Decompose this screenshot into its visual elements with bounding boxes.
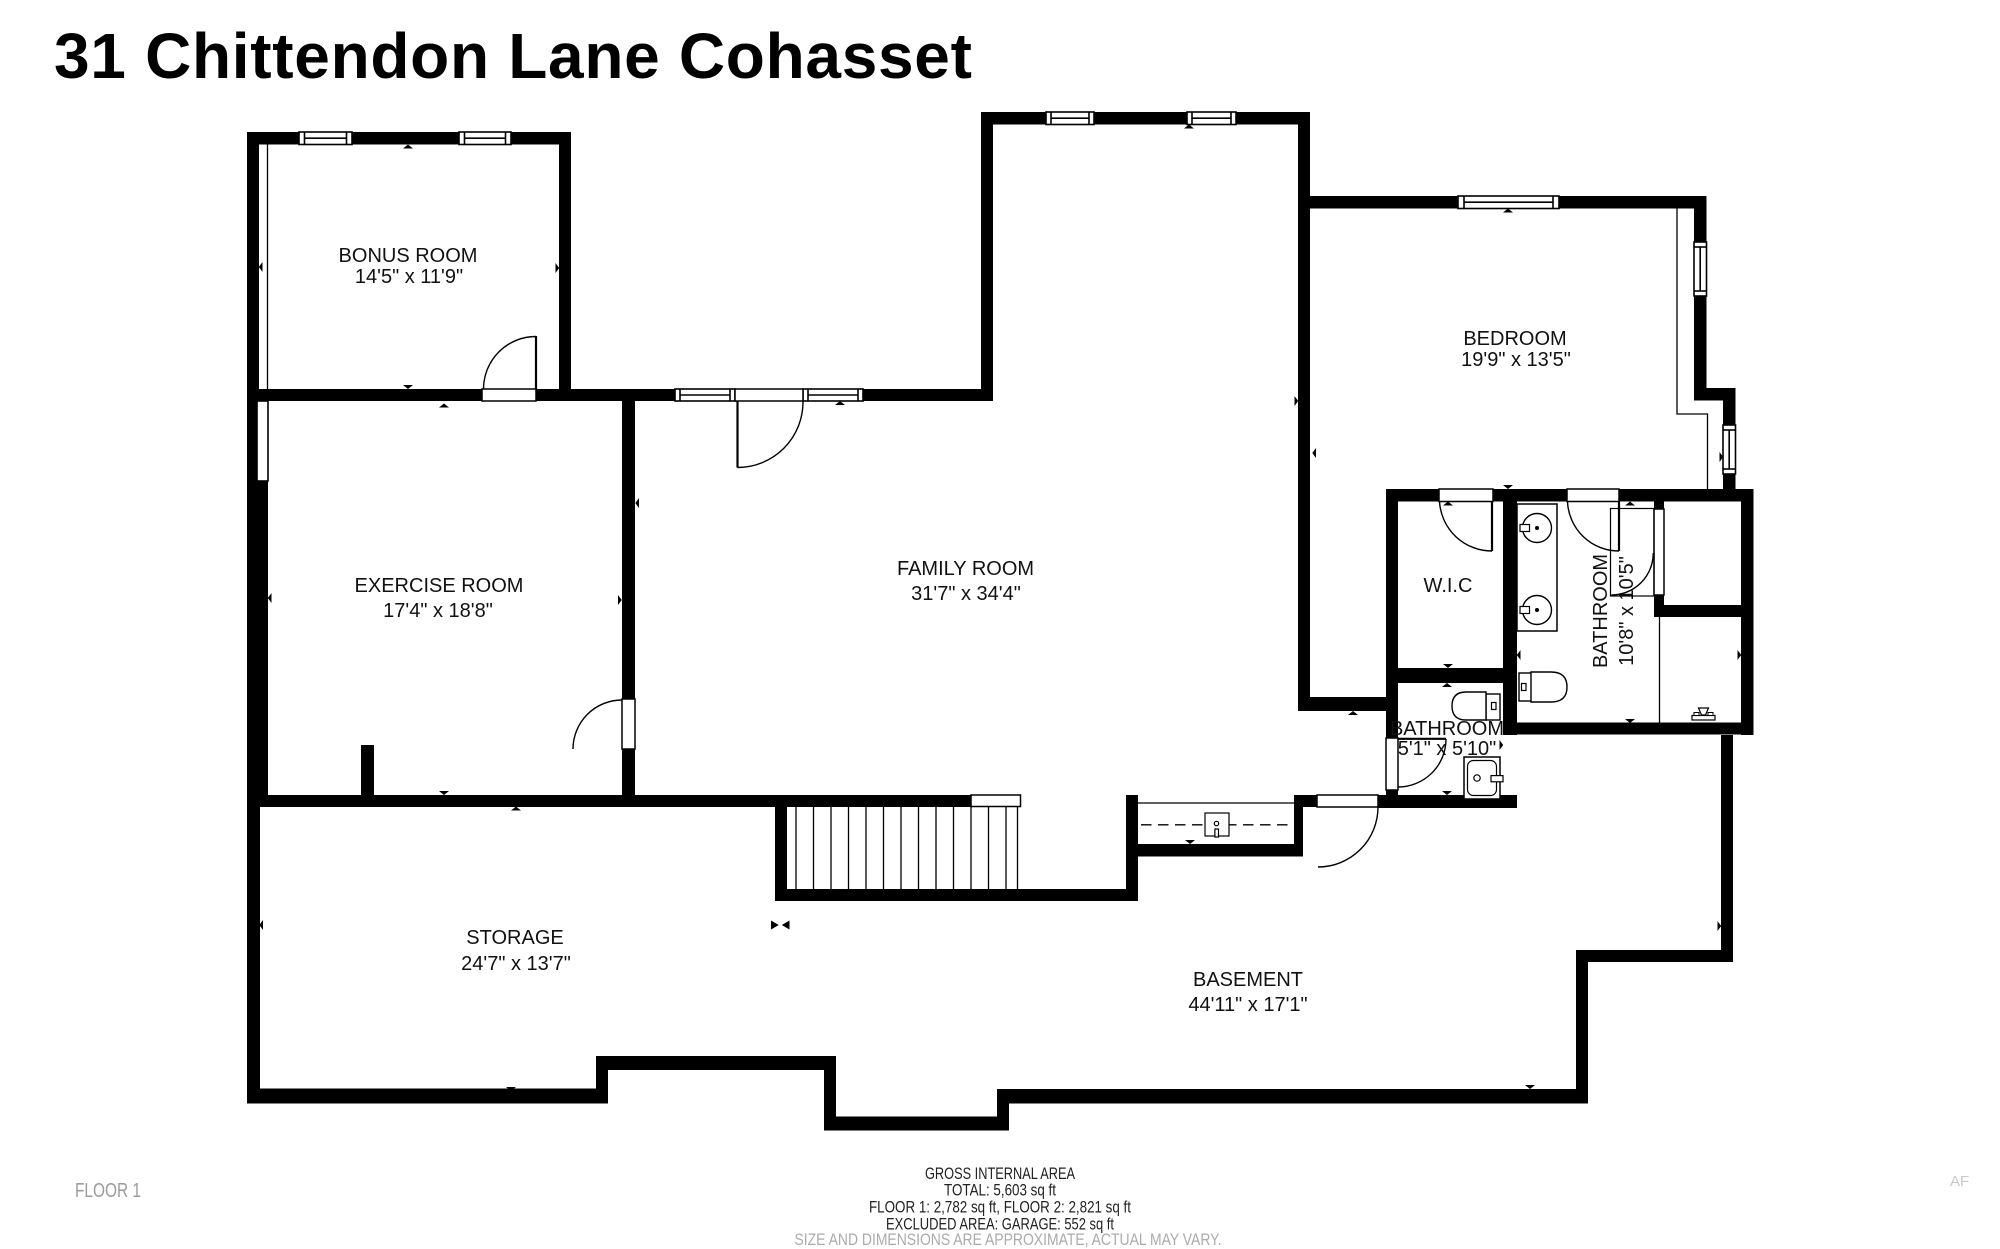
svg-text:GROSS INTERNAL AREA: GROSS INTERNAL AREA	[925, 1165, 1075, 1183]
svg-text:19'9" x 13'5": 19'9" x 13'5"	[1461, 349, 1571, 371]
svg-text:BATHROOM: BATHROOM	[1390, 718, 1504, 740]
svg-text:31'7" x 34'4": 31'7" x 34'4"	[911, 583, 1021, 605]
svg-text:BONUS ROOM: BONUS ROOM	[339, 245, 478, 267]
svg-text:24'7" x 13'7": 24'7" x 13'7"	[461, 953, 571, 975]
svg-text:BATHROOM: BATHROOM	[1590, 554, 1612, 668]
svg-text:TOTAL: 5,603 sq ft: TOTAL: 5,603 sq ft	[944, 1182, 1056, 1200]
svg-text:W.I.C: W.I.C	[1424, 575, 1473, 597]
svg-text:EXERCISE ROOM: EXERCISE ROOM	[355, 575, 524, 597]
svg-text:17'4" x 18'8": 17'4" x 18'8"	[383, 600, 493, 622]
svg-text:44'11" x 17'1": 44'11" x 17'1"	[1188, 994, 1307, 1016]
svg-text:5'1" x 5'10": 5'1" x 5'10"	[1398, 738, 1497, 760]
svg-text:AF: AF	[1950, 1173, 1969, 1190]
svg-text:10'8" x 10'5": 10'8" x 10'5"	[1616, 556, 1638, 666]
svg-text:BASEMENT: BASEMENT	[1193, 969, 1303, 991]
svg-text:FLOOR 1: 2,782 sq ft, FLOOR 2:: FLOOR 1: 2,782 sq ft, FLOOR 2: 2,821 sq …	[869, 1198, 1131, 1216]
svg-text:FLOOR 1: FLOOR 1	[75, 1180, 141, 1202]
svg-text:14'5" x 11'9": 14'5" x 11'9"	[355, 266, 463, 288]
svg-text:SIZE AND DIMENSIONS ARE APPROX: SIZE AND DIMENSIONS ARE APPROXIMATE, ACT…	[795, 1231, 1222, 1249]
svg-text:31 Chittendon Lane Cohasset: 31 Chittendon Lane Cohasset	[54, 20, 973, 92]
svg-text:BEDROOM: BEDROOM	[1463, 328, 1566, 350]
svg-text:FAMILY ROOM: FAMILY ROOM	[897, 558, 1034, 580]
svg-text:STORAGE: STORAGE	[466, 927, 563, 949]
